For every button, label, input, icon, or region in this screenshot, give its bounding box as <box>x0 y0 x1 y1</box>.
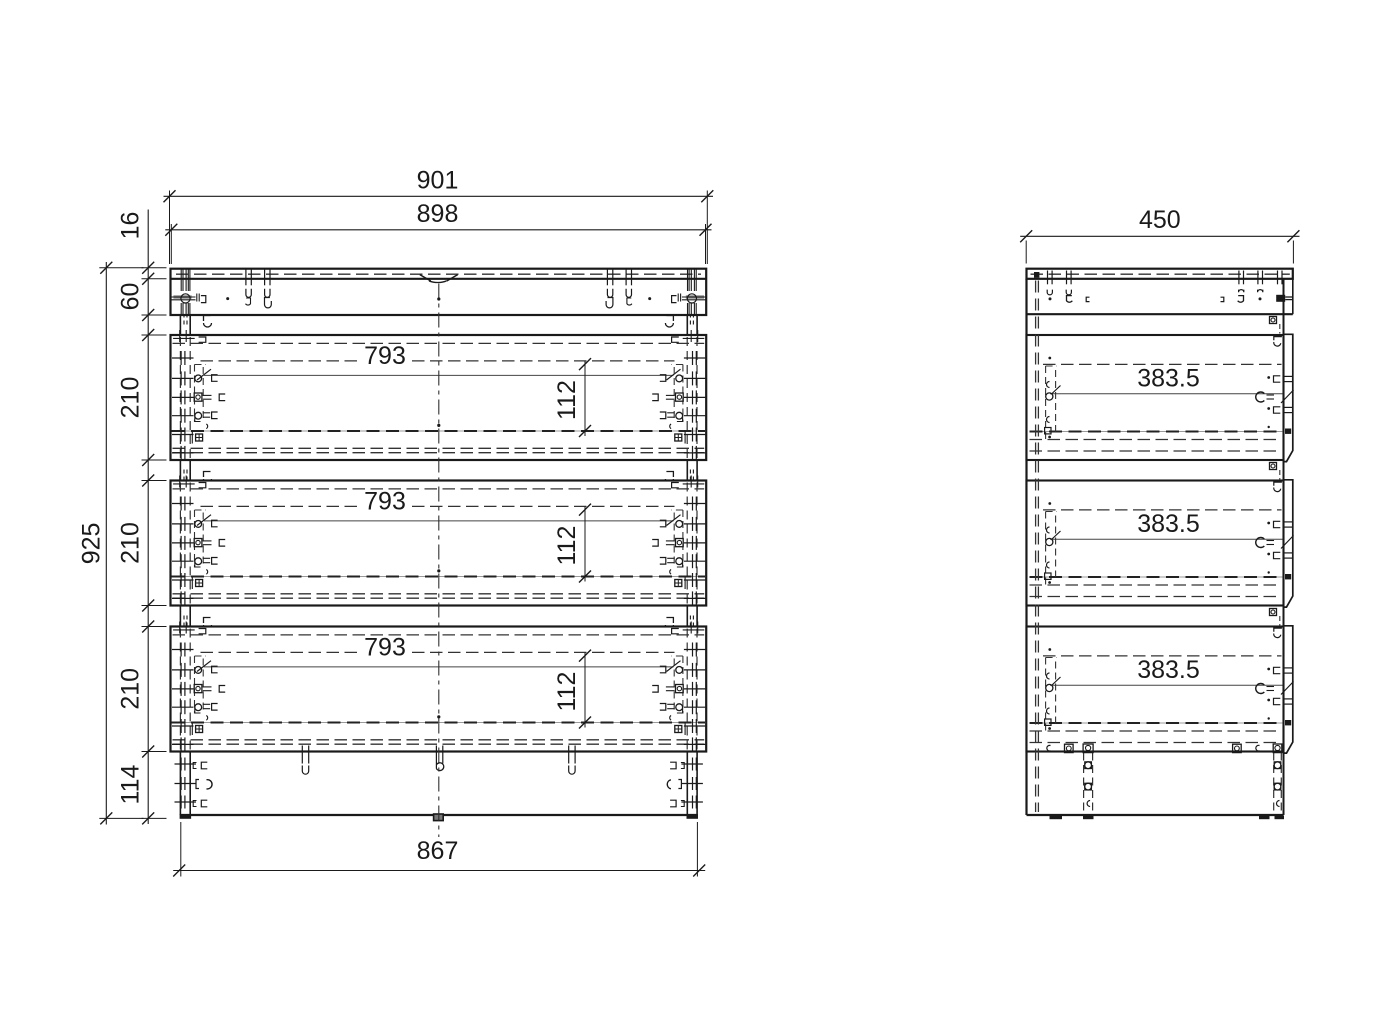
svg-text:114: 114 <box>117 764 145 804</box>
svg-text:112: 112 <box>553 380 581 420</box>
svg-text:112: 112 <box>553 672 581 712</box>
svg-text:793: 793 <box>364 488 406 516</box>
svg-text:867: 867 <box>417 837 459 865</box>
svg-text:210: 210 <box>117 668 145 710</box>
svg-text:16: 16 <box>117 212 145 240</box>
svg-text:383.5: 383.5 <box>1137 656 1200 684</box>
svg-text:60: 60 <box>117 283 145 311</box>
svg-text:901: 901 <box>417 167 459 195</box>
svg-text:210: 210 <box>117 377 145 419</box>
svg-text:112: 112 <box>553 526 581 566</box>
svg-text:383.5: 383.5 <box>1137 510 1200 538</box>
svg-text:925: 925 <box>78 523 106 565</box>
svg-text:450: 450 <box>1139 206 1181 234</box>
svg-text:793: 793 <box>364 342 406 370</box>
svg-text:898: 898 <box>417 200 459 228</box>
svg-text:210: 210 <box>117 522 145 564</box>
svg-text:383.5: 383.5 <box>1137 365 1200 393</box>
svg-text:793: 793 <box>364 634 406 662</box>
